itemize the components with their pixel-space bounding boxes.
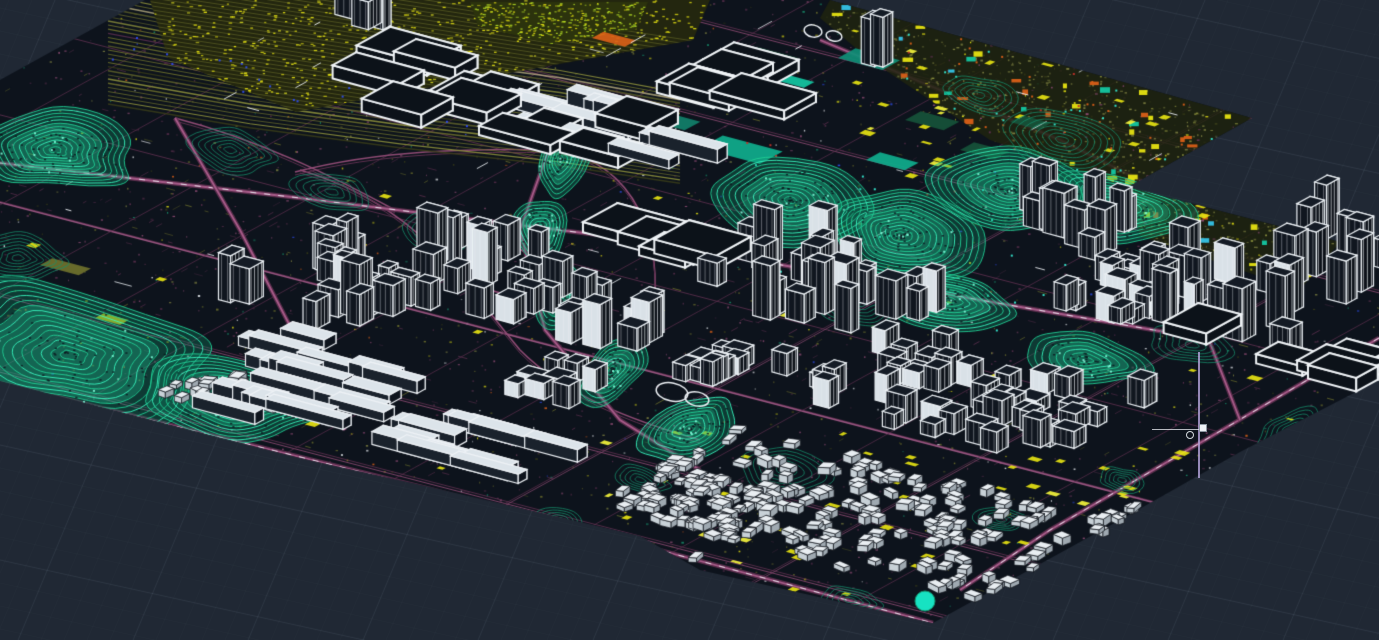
city-model-canvas[interactable] [0,0,1379,640]
cad-3d-viewport[interactable] [0,0,1379,640]
